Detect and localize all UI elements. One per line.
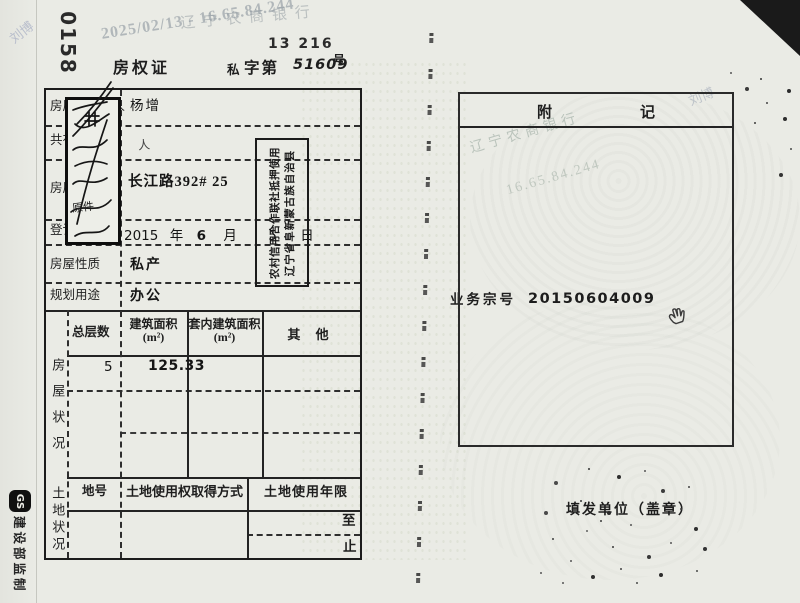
label-house-status: 房屋状况 <box>50 358 64 462</box>
header-built-area: 建筑面积 (m²) <box>120 318 187 344</box>
gs-badge: GS <box>9 490 31 512</box>
handwritten-code: 13 216 <box>268 37 334 52</box>
watermark-bank: 辽宁农商银行 <box>179 0 318 33</box>
credit-union-stamp: 农村信用合作联社抵押使用 辽宁省阜新蒙古族自治县 <box>255 138 309 287</box>
label-term-from: 至 <box>342 514 356 529</box>
scan-edge-strip <box>0 0 37 603</box>
scanned-property-certificate: 刘博 辽宁农商银行 2025/02/13 - 16.65.84.244 辽宁农商… <box>0 0 800 603</box>
stamp-line-union: 农村信用合作联社抵押使用 <box>267 138 282 288</box>
appendix-header-left: 附 <box>537 101 552 122</box>
stamp-line-county: 辽宁省阜新蒙古族自治县 <box>282 138 297 288</box>
date-year-char: 年 <box>170 228 184 243</box>
speckle-noise-corner <box>760 78 762 80</box>
value-floors: 5 <box>104 360 113 375</box>
header-other: 其 他 <box>262 328 360 342</box>
label-land-status: 土地状况 <box>50 486 64 554</box>
label-term-to: 止 <box>343 540 357 555</box>
header-inner-area: 套内建筑面积 (m²) <box>187 318 262 344</box>
cert-title: 房权证 <box>113 60 170 78</box>
value-planned-use: 办公 <box>130 289 162 304</box>
header-inner-area-line1: 套内建筑面积 <box>188 317 260 331</box>
value-co-mark: 人 <box>137 138 150 152</box>
header-built-area-line1: 建筑面积 <box>129 317 177 331</box>
folded-corner <box>740 0 800 56</box>
value-owner: 杨增 <box>130 99 161 114</box>
label-floors: 总层数 <box>72 326 116 340</box>
value-built-area: 125.33 <box>148 359 205 374</box>
certificate-form-table: 房屋所有权人 共有情况 房屋坐落 登记时间 房屋性质 规划用途 总层数 房屋状况… <box>44 88 362 560</box>
appendix-box: 附 记 <box>458 92 734 447</box>
speckle-noise <box>600 520 602 522</box>
handwritten-visible-text: 原件 <box>71 200 94 216</box>
edge-vertical-text: 建设部监制 <box>11 516 30 594</box>
cert-zidi: 字第 <box>244 60 279 77</box>
value-location: 长江路392# 25 <box>128 175 229 191</box>
header-inner-area-line2: (m²) <box>214 330 236 344</box>
label-land-acquire: 土地使用权取得方式 <box>126 485 243 499</box>
handwritten-note-stamp: 原件 <box>65 97 121 245</box>
label-nature: 房屋性质 <box>50 258 112 272</box>
header-built-area-line2: (m²) <box>143 330 165 344</box>
date-month: 6 <box>197 228 206 244</box>
binding-serial-marks <box>416 12 434 594</box>
watermark-scan-info: 2025/02/13 - 16.65.84.244 <box>100 0 296 44</box>
handwriting-scribble: 原件 <box>65 80 115 250</box>
label-planned-use: 规划用途 <box>50 289 112 303</box>
cert-hao: 号 <box>333 54 345 67</box>
label-land-no: 地号 <box>82 485 114 499</box>
appendix-header-right: 记 <box>640 101 655 122</box>
cert-type: 私 <box>227 64 240 78</box>
label-land-term: 土地使用年限 <box>264 485 348 499</box>
gs-badge-text: GS <box>14 493 25 508</box>
date-year: 2015 <box>124 228 158 244</box>
issuer-label: 填发单位（盖章） <box>566 503 694 518</box>
date-month-char: 月 <box>223 228 237 243</box>
serial-number: 0158 <box>57 11 79 75</box>
value-nature: 私产 <box>130 258 162 273</box>
